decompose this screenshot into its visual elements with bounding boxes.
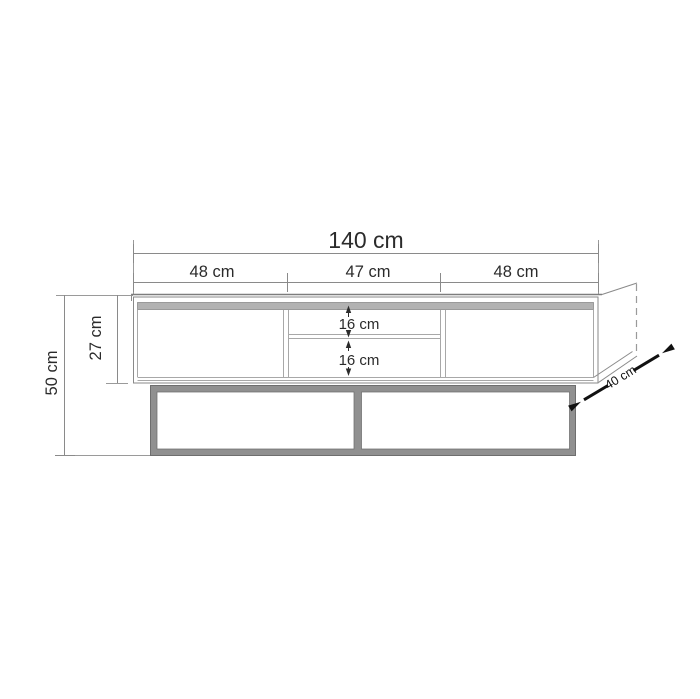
tv-stand-dimension-drawing: 140 cm 48 cm 47 cm 48 cm 50 cm 27 cm (0, 0, 700, 699)
dimension-sections: 48 cm 47 cm 48 cm (133, 263, 599, 292)
shelf-upper-label: 16 cm (339, 316, 380, 333)
cabinet-body (131, 295, 602, 384)
dimension-total-width: 140 cm (133, 227, 599, 263)
dimension-body-height: 27 cm (87, 295, 118, 383)
base-frame (151, 386, 576, 456)
dimension-total-height: 50 cm (43, 295, 75, 456)
section-middle-label: 47 cm (346, 263, 391, 281)
arrowhead-up-right-icon (660, 344, 675, 357)
base-frame-opening-left (157, 392, 354, 449)
top-back-slant (602, 283, 637, 295)
section-left-label: 48 cm (190, 263, 235, 281)
body-height-label: 27 cm (87, 316, 105, 361)
cabinet-top-band (138, 303, 594, 310)
section-right-label: 48 cm (494, 263, 539, 281)
shelf-lower-label: 16 cm (339, 352, 380, 369)
total-height-label: 50 cm (43, 351, 61, 396)
dimension-drawing-page: 140 cm 48 cm 47 cm 48 cm 50 cm 27 cm (0, 0, 700, 699)
total-width-label: 140 cm (328, 227, 403, 253)
base-frame-opening-right (362, 392, 570, 449)
